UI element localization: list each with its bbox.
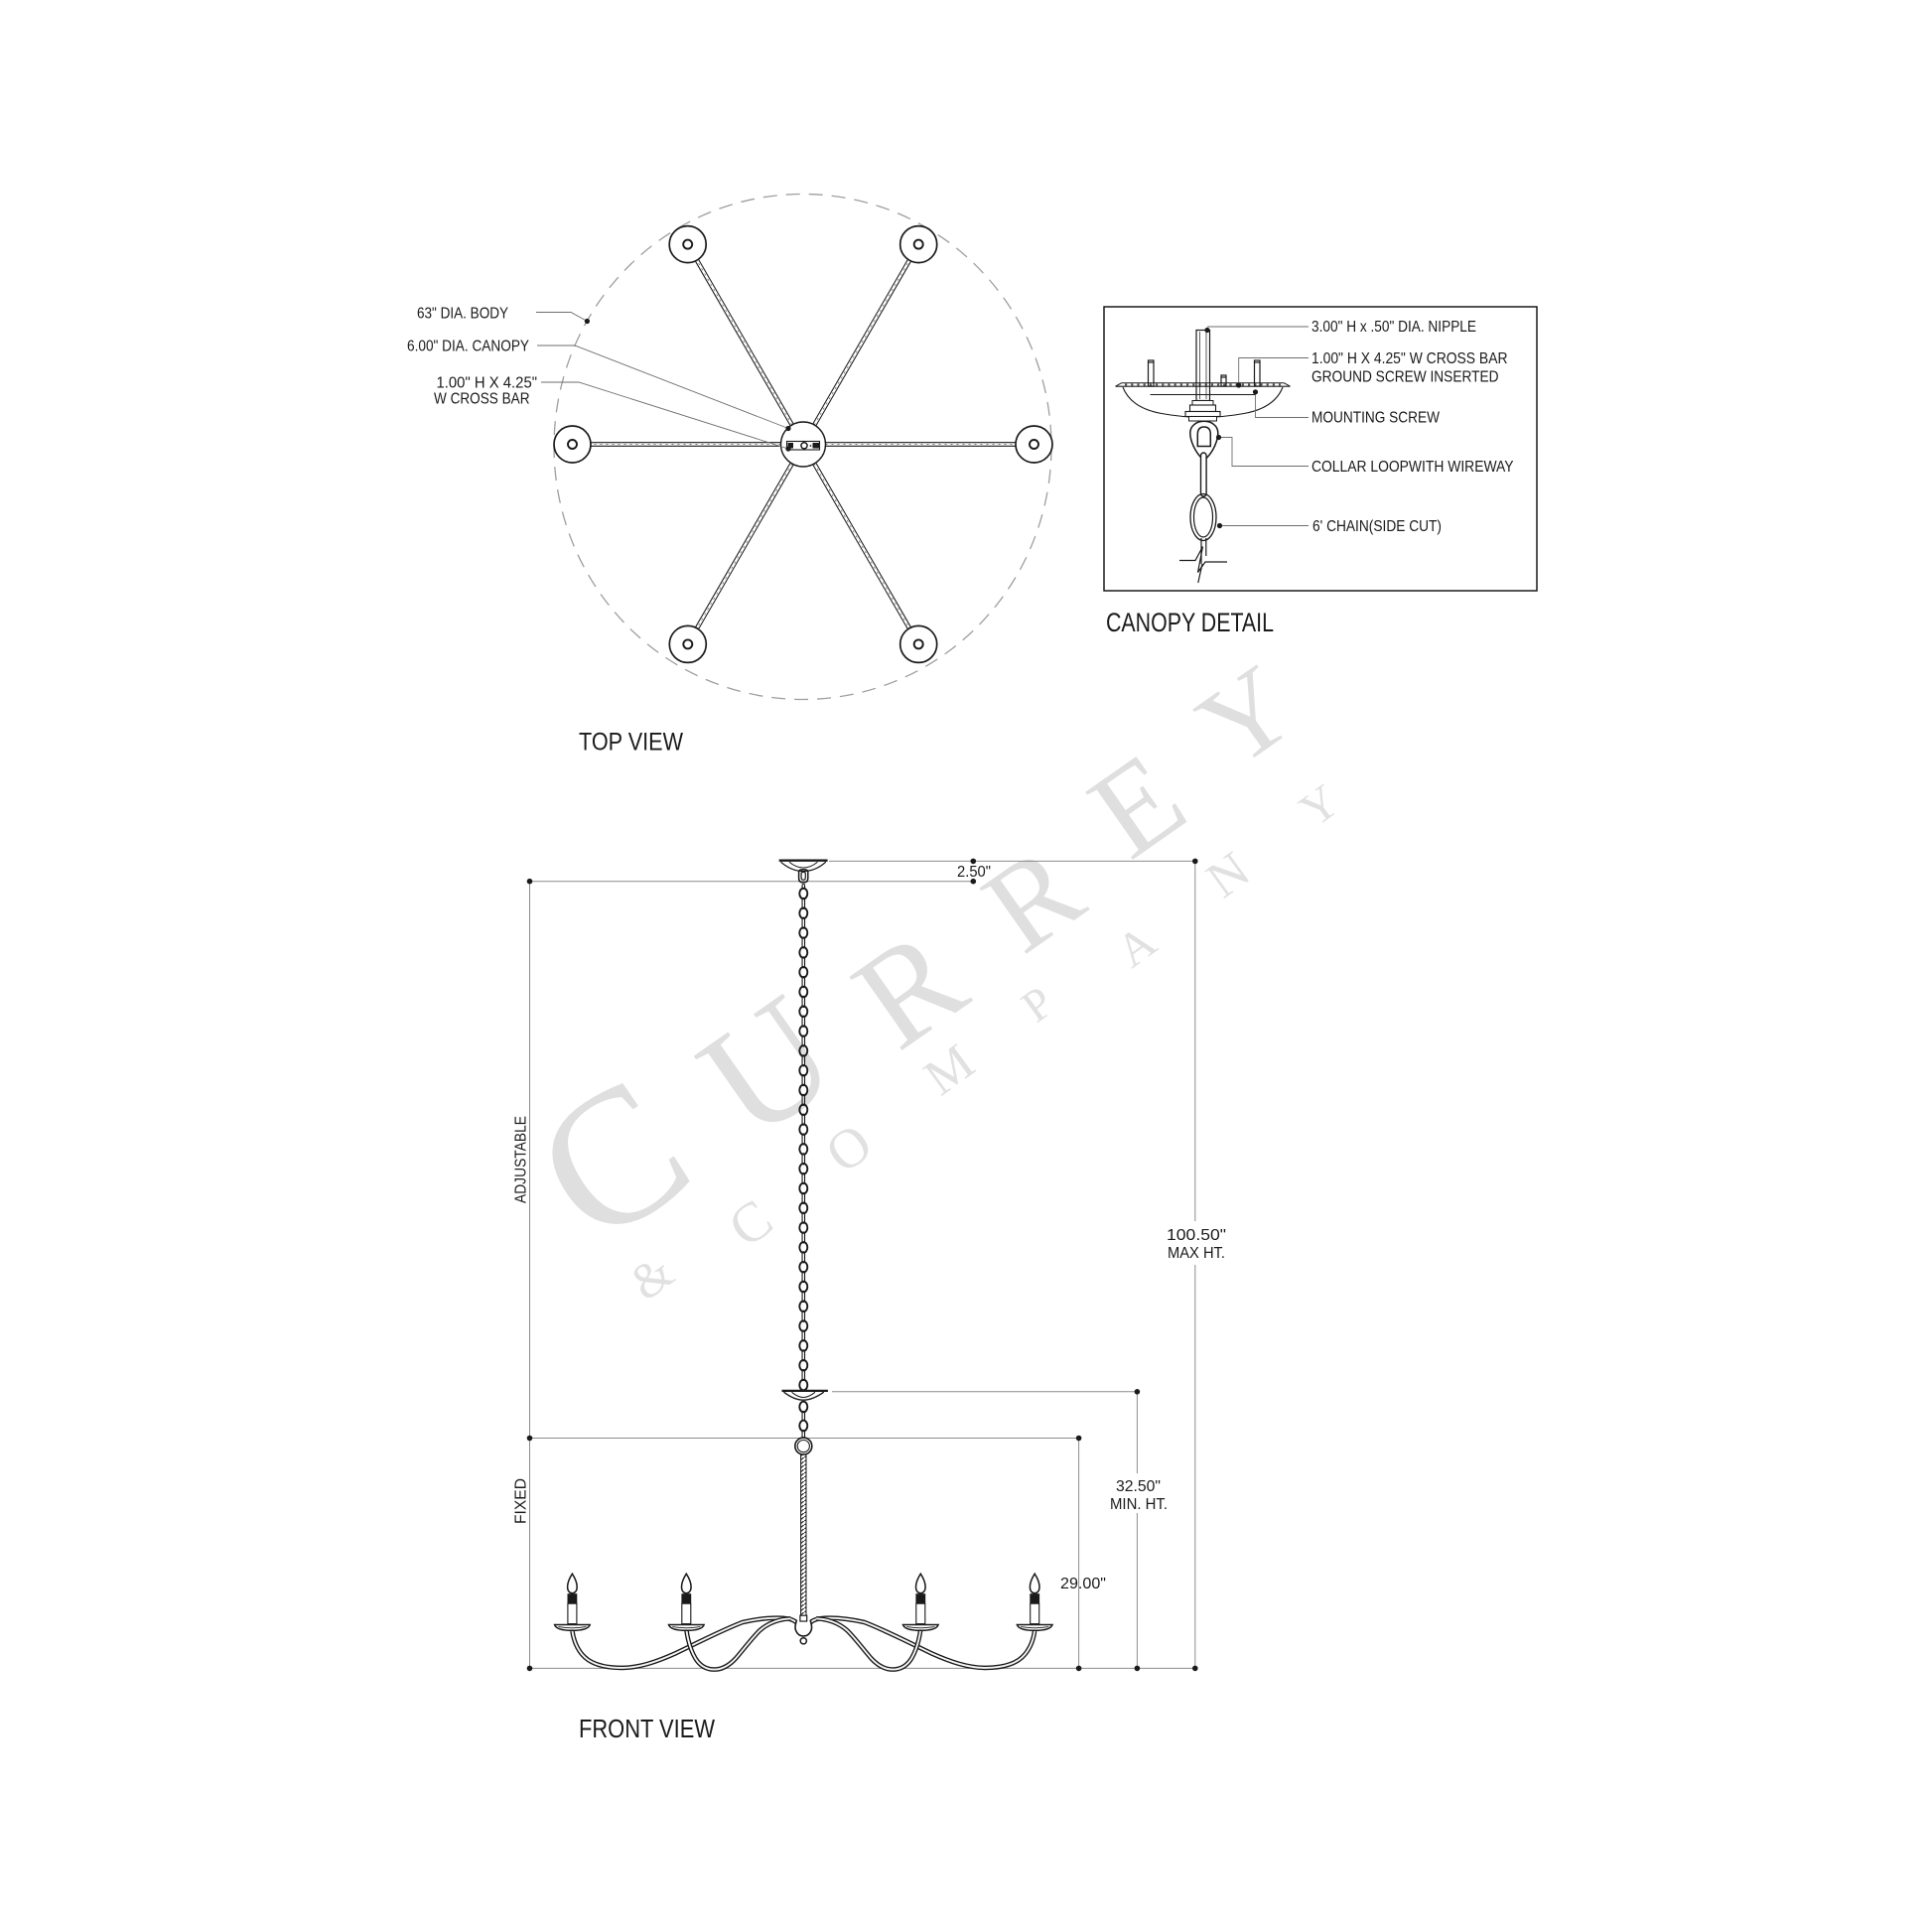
svg-text:ADJUSTABLE: ADJUSTABLE [513, 1116, 530, 1203]
svg-text:MOUNTING SCREW: MOUNTING SCREW [1311, 410, 1441, 427]
svg-text:100.50": 100.50" [1167, 1227, 1226, 1244]
svg-text:3.00" H x .50" DIA. NIPPLE: 3.00" H x .50" DIA. NIPPLE [1311, 319, 1476, 336]
svg-text:COLLAR LOOPWITH WIREWAY: COLLAR LOOPWITH WIREWAY [1311, 459, 1514, 476]
svg-text:GROUND SCREW INSERTED: GROUND SCREW INSERTED [1311, 369, 1499, 386]
svg-text:32.50": 32.50" [1116, 1478, 1161, 1495]
svg-text:1.00" H X 4.25" W CROSS BAR: 1.00" H X 4.25" W CROSS BAR [1311, 350, 1508, 367]
svg-text:2.50": 2.50" [957, 864, 991, 881]
svg-text:W CROSS BAR: W CROSS BAR [434, 391, 530, 408]
svg-text:6.00" DIA. CANOPY: 6.00" DIA. CANOPY [407, 339, 529, 355]
svg-text:TOP VIEW: TOP VIEW [579, 729, 683, 757]
svg-text:CANOPY DETAIL: CANOPY DETAIL [1106, 608, 1274, 637]
svg-text:MAX HT.: MAX HT. [1168, 1245, 1225, 1262]
svg-text:63" DIA. BODY: 63" DIA. BODY [417, 306, 508, 323]
svg-text:6' CHAIN(SIDE CUT): 6' CHAIN(SIDE CUT) [1312, 518, 1442, 535]
svg-text:FIXED: FIXED [513, 1478, 530, 1524]
svg-text:29.00": 29.00" [1060, 1576, 1106, 1592]
svg-text:FRONT VIEW: FRONT VIEW [579, 1714, 715, 1743]
svg-text:MIN. HT.: MIN. HT. [1110, 1496, 1168, 1513]
svg-text:1.00" H X 4.25": 1.00" H X 4.25" [437, 375, 538, 392]
